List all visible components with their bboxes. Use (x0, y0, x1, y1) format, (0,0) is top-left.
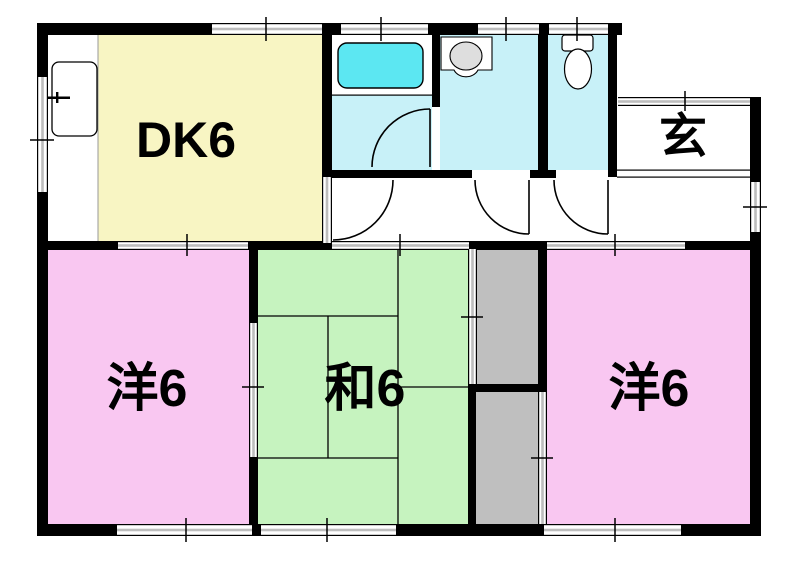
window-tick (30, 139, 54, 141)
window-washroom-top-line (478, 23, 539, 24)
window-dk-left-band (41, 77, 44, 192)
window-dk-left-line (37, 77, 38, 192)
sliding-door-hall-western-right-band (547, 244, 685, 247)
wall-segment (249, 241, 258, 323)
toilet-bowl (565, 49, 592, 89)
room-label-western-left: 洋6 (107, 360, 188, 418)
wall-segment (396, 524, 544, 536)
wall-segment (322, 170, 472, 178)
room-label-dk: DK6 (136, 112, 236, 168)
window-japanese-bottom-band (261, 529, 396, 532)
window-washroom-top-line (478, 34, 539, 35)
washbasin (450, 42, 482, 70)
doorway-dk-hall-line (331, 177, 332, 243)
bath-counter-edge (332, 95, 432, 96)
window-toilet-top-line (549, 23, 608, 24)
room-label-japanese: 和6 (325, 360, 406, 418)
wall-segment (681, 524, 761, 536)
window-tick (684, 91, 686, 111)
window-dk-top-line (212, 34, 322, 35)
window-tick (399, 234, 401, 256)
wall-segment (249, 457, 258, 524)
wall-segment (37, 23, 48, 77)
window-japanese-bottom-line (261, 524, 396, 525)
sliding-door-hall-western-right-line (547, 249, 685, 250)
room-fills (48, 35, 750, 524)
entrance-door-band (618, 100, 750, 103)
door-arc-washroom (475, 180, 529, 234)
doorway-dk-hall-line (322, 177, 323, 243)
wall-segment (608, 23, 622, 35)
genkan-step-line-bottom (617, 177, 750, 178)
counter-divider-line (98, 35, 99, 241)
window-tick (185, 518, 187, 542)
window-tick (242, 386, 264, 388)
window-tick (743, 206, 767, 208)
window-dk-top-line (212, 23, 322, 24)
window-tick (576, 17, 578, 41)
doorway-dk-hall-band (326, 177, 329, 243)
wall-segment (530, 170, 556, 178)
window-dk-left-line (47, 77, 48, 192)
wall-segment (539, 23, 549, 35)
window-bathroom-top-line (341, 34, 428, 35)
wall-segment (685, 241, 761, 250)
genkan-step-line-top (617, 170, 750, 171)
window-tick (326, 518, 328, 542)
window-bathroom-top-line (341, 23, 428, 24)
window-tick (186, 234, 188, 256)
wall-segment (432, 35, 440, 107)
sliding-door-western-left-japanese-line (257, 323, 258, 457)
floorplan-svg: DK6 玄 洋6 和6 洋6 (0, 0, 800, 564)
closet-bottom-floor (476, 392, 538, 524)
window-toilet-top-band (549, 28, 608, 31)
window-western-right-bottom-line (544, 535, 681, 536)
room-label-western-right: 洋6 (609, 360, 690, 418)
wall-segment (750, 232, 761, 536)
window-western-left-bottom-line (117, 535, 252, 536)
window-western-left-bottom-band (117, 529, 252, 532)
wall-segment (37, 23, 212, 35)
window-toilet-top-line (549, 34, 608, 35)
window-tick (614, 518, 616, 542)
window-tick (265, 17, 267, 41)
wall-segment (468, 384, 476, 524)
sliding-door-dk-western-left-band (118, 244, 248, 247)
door-arc-toilet (554, 180, 608, 234)
window-tick (461, 316, 483, 318)
closet-top-floor (477, 250, 538, 384)
window-western-left-bottom-line (117, 524, 252, 525)
faucet-handle-icon (56, 92, 58, 103)
window-tick (505, 17, 507, 41)
sliding-door-western-left-japanese-band (252, 323, 255, 457)
window-tick (531, 457, 553, 459)
window-western-right-bottom-band (544, 529, 681, 532)
sliding-door-dk-western-left-line (118, 249, 248, 250)
sliding-door-western-left-japanese-line (249, 323, 250, 457)
window-washroom-top-band (478, 28, 539, 31)
sliding-door-hall-western-right-line (547, 241, 685, 242)
wall-segment (538, 241, 547, 392)
wall-segment (608, 35, 617, 177)
wall-segment (252, 524, 261, 536)
window-tick (380, 17, 382, 41)
wall-segment (322, 35, 332, 177)
window-tick (614, 234, 616, 256)
wall-segment (750, 97, 761, 182)
room-label-entrance: 玄 (659, 111, 707, 164)
wall-segment (428, 23, 478, 35)
wall-segment (538, 35, 548, 177)
window-japanese-bottom-line (261, 535, 396, 536)
wall-segment (469, 241, 547, 250)
door-arc-dk-hall (333, 180, 393, 240)
wall-segment (37, 241, 118, 250)
entrance-door-line (618, 97, 750, 98)
sliding-door-dk-western-left-line (118, 241, 248, 242)
window-western-right-bottom-line (544, 524, 681, 525)
wall-segment (248, 241, 332, 250)
floorplan-canvas: DK6 玄 洋6 和6 洋6 (0, 0, 800, 564)
entrance-door-line (618, 105, 750, 106)
genkan-step (617, 170, 750, 178)
window-dk-top-band (212, 28, 322, 31)
wall-segment (322, 23, 341, 35)
wall-segment (468, 384, 547, 392)
wall-segment (37, 524, 117, 536)
bathtub (338, 43, 423, 88)
window-bathroom-top-band (341, 28, 428, 31)
